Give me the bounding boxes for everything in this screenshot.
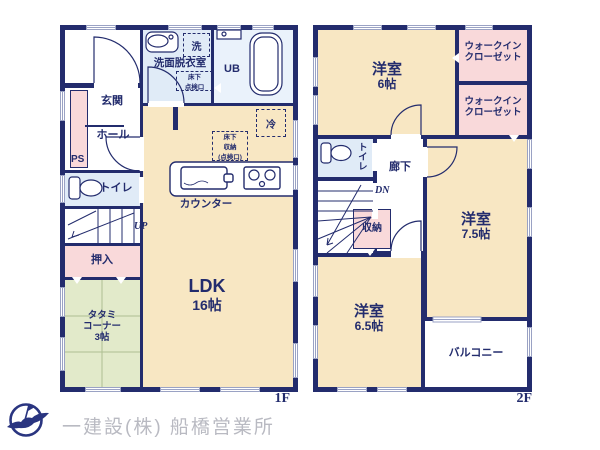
window — [86, 25, 116, 30]
stairs-up-label: UP — [134, 221, 147, 233]
floor-plan-1f: 洗 床下 点検口 冷 床下 収納 (点検口) 洗面脱衣室 UB 玄関 ホール P… — [60, 25, 298, 392]
opening-marker — [452, 53, 459, 63]
window — [293, 165, 298, 190]
company-name: 一建設(株) 船橋営業所 — [62, 412, 275, 439]
ldk-label: LDK 16帖 — [189, 276, 226, 313]
opening-marker — [72, 277, 82, 284]
window — [407, 25, 436, 30]
window — [527, 207, 532, 237]
storage-line3: (点検口) — [218, 151, 242, 161]
window — [60, 287, 65, 317]
wic1-line2: クローゼット — [464, 53, 521, 64]
window — [337, 387, 367, 392]
wall-stub — [173, 106, 178, 130]
fridge-label: 冷 — [266, 116, 276, 131]
window — [168, 25, 202, 30]
kitchen-counter-label: カウンター — [180, 198, 233, 210]
closet-2f-label: 収納 — [362, 223, 382, 235]
opening-marker — [365, 249, 375, 256]
entrance-label: 玄関 — [101, 95, 123, 108]
window — [293, 343, 298, 378]
bedroom65-size: 6.5帖 — [354, 320, 384, 334]
window — [293, 249, 298, 282]
floor-plan-page: 洗 床下 点検口 冷 床下 収納 (点検口) 洗面脱衣室 UB 玄関 ホール P… — [0, 0, 600, 450]
opening-marker — [214, 83, 221, 93]
toilet-1f-label: トイレ — [100, 182, 133, 195]
storage-line1: 床下 — [224, 131, 237, 141]
staircase-1f — [65, 209, 140, 243]
opening-marker — [509, 135, 519, 142]
washer-box: 洗 — [183, 33, 210, 57]
pipe-space-label: PS — [71, 154, 84, 166]
wic2-line2: クローゼット — [464, 108, 521, 119]
washer-label: 洗 — [192, 38, 202, 53]
bedroom6-label: 洋室 6帖 — [372, 61, 402, 92]
window — [293, 120, 298, 158]
window — [527, 327, 532, 357]
washroom-label: 洗面脱衣室 — [154, 57, 207, 69]
window — [377, 387, 407, 392]
window — [85, 387, 121, 392]
window — [465, 25, 493, 30]
floor1-tag: 1F — [274, 391, 290, 407]
room-entrance-porch — [65, 30, 140, 83]
window — [217, 25, 241, 30]
tatami-label: タタミ コーナー 3帖 — [83, 311, 121, 344]
hatch-line2: 点検口 — [185, 81, 205, 91]
tatami-size: 3帖 — [83, 333, 121, 344]
fridge-box: 冷 — [256, 109, 286, 137]
bedroom6-size: 6帖 — [372, 78, 402, 92]
hatch-line1: 床下 — [188, 71, 201, 81]
floor2-tag: 2F — [516, 391, 532, 407]
wic2-label: ウォークイン クローゼット — [464, 97, 521, 119]
opening-marker — [116, 277, 126, 284]
company-logo-icon — [4, 398, 52, 446]
window — [313, 95, 318, 125]
window — [527, 139, 532, 169]
wic1-label: ウォークイン クローゼット — [464, 42, 521, 64]
toilet-2f-label: トイレ — [355, 142, 366, 171]
window — [160, 387, 200, 392]
hallway-label: 廊下 — [389, 161, 411, 174]
ldk-name: LDK — [189, 276, 226, 297]
window — [353, 25, 382, 30]
hall-label: ホール — [97, 129, 130, 142]
underfloor-storage-box: 床下 収納 (点検口) — [212, 131, 248, 161]
oshiire-label: 押入 — [91, 254, 113, 267]
window — [313, 325, 318, 359]
window — [60, 175, 65, 203]
bedroom75-label: 洋室 7.5帖 — [461, 211, 491, 242]
window — [252, 25, 274, 30]
bedroom65-label: 洋室 6.5帖 — [354, 303, 384, 334]
storage-line2: 収納 — [224, 141, 237, 151]
window — [313, 265, 318, 297]
window — [60, 91, 65, 121]
window — [60, 337, 65, 371]
underfloor-hatch-box: 床下 点検口 — [176, 71, 213, 91]
window — [220, 387, 260, 392]
unit-bath-label: UB — [224, 63, 240, 76]
floor-plan-2f: 洋室 6帖 ウォークイン クローゼット ウォークイン クローゼット トイレ 廊下… — [313, 25, 532, 392]
stairs-dn-label: DN — [375, 185, 389, 197]
bedroom65-name: 洋室 — [354, 303, 384, 320]
ldk-size: 16帖 — [189, 297, 226, 313]
bedroom75-size: 7.5帖 — [461, 228, 491, 242]
window — [313, 57, 318, 87]
balcony-label: バルコニー — [449, 347, 504, 360]
bedroom6-name: 洋室 — [372, 61, 402, 78]
bedroom75-name: 洋室 — [461, 211, 491, 228]
